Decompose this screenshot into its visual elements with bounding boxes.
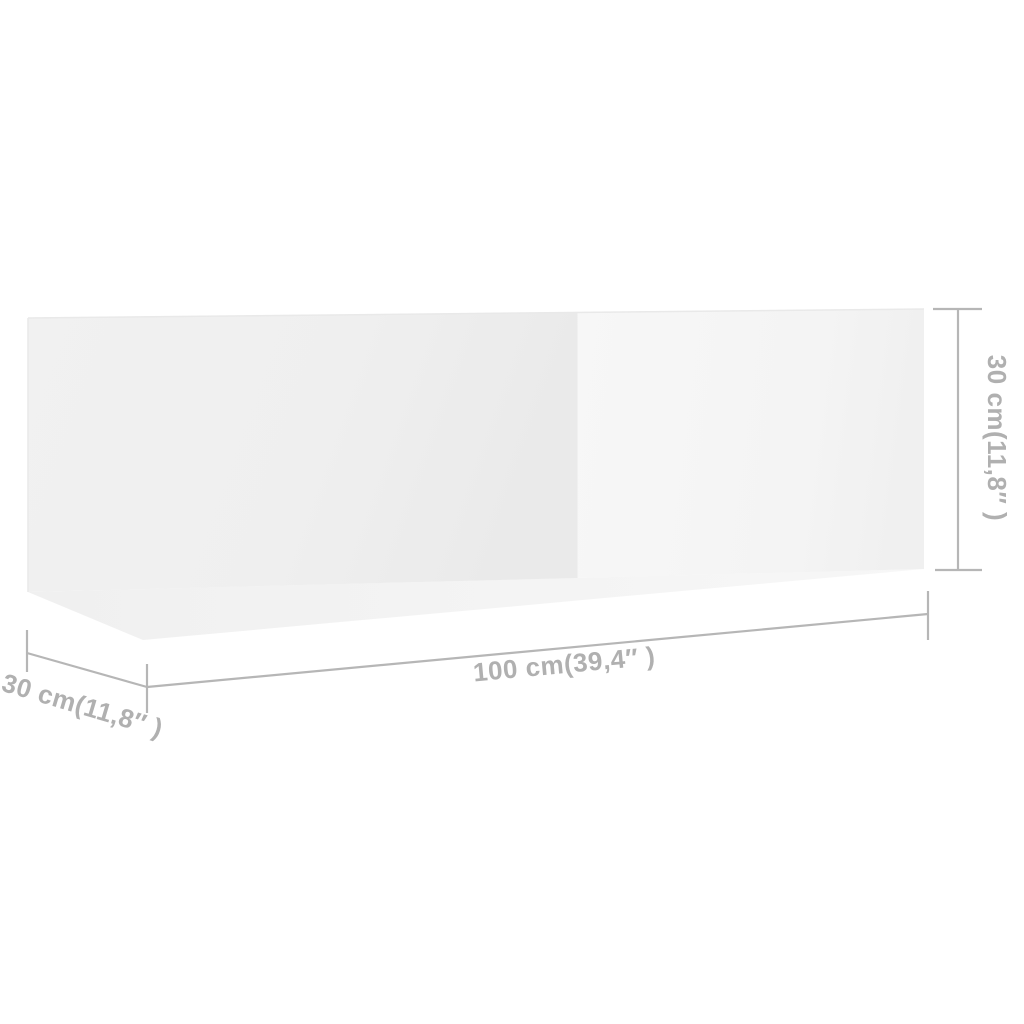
depth-dimension: 30 cm(11,8″ ) <box>0 630 167 743</box>
height-dimension-label: 30 cm(11,8″ ) <box>982 355 1012 521</box>
dimension-diagram: 100 cm(39,4″ ) 30 cm(11,8″ ) 30 cm(11,8″… <box>0 0 1024 1024</box>
cabinet <box>28 309 924 640</box>
product-image-canvas: 100 cm(39,4″ ) 30 cm(11,8″ ) 30 cm(11,8″… <box>0 0 1024 1024</box>
height-dimension: 30 cm(11,8″ ) <box>933 309 1012 570</box>
cabinet-right-door <box>578 309 925 578</box>
depth-dimension-label: 30 cm(11,8″ ) <box>0 667 167 743</box>
cabinet-left-door <box>28 313 578 593</box>
